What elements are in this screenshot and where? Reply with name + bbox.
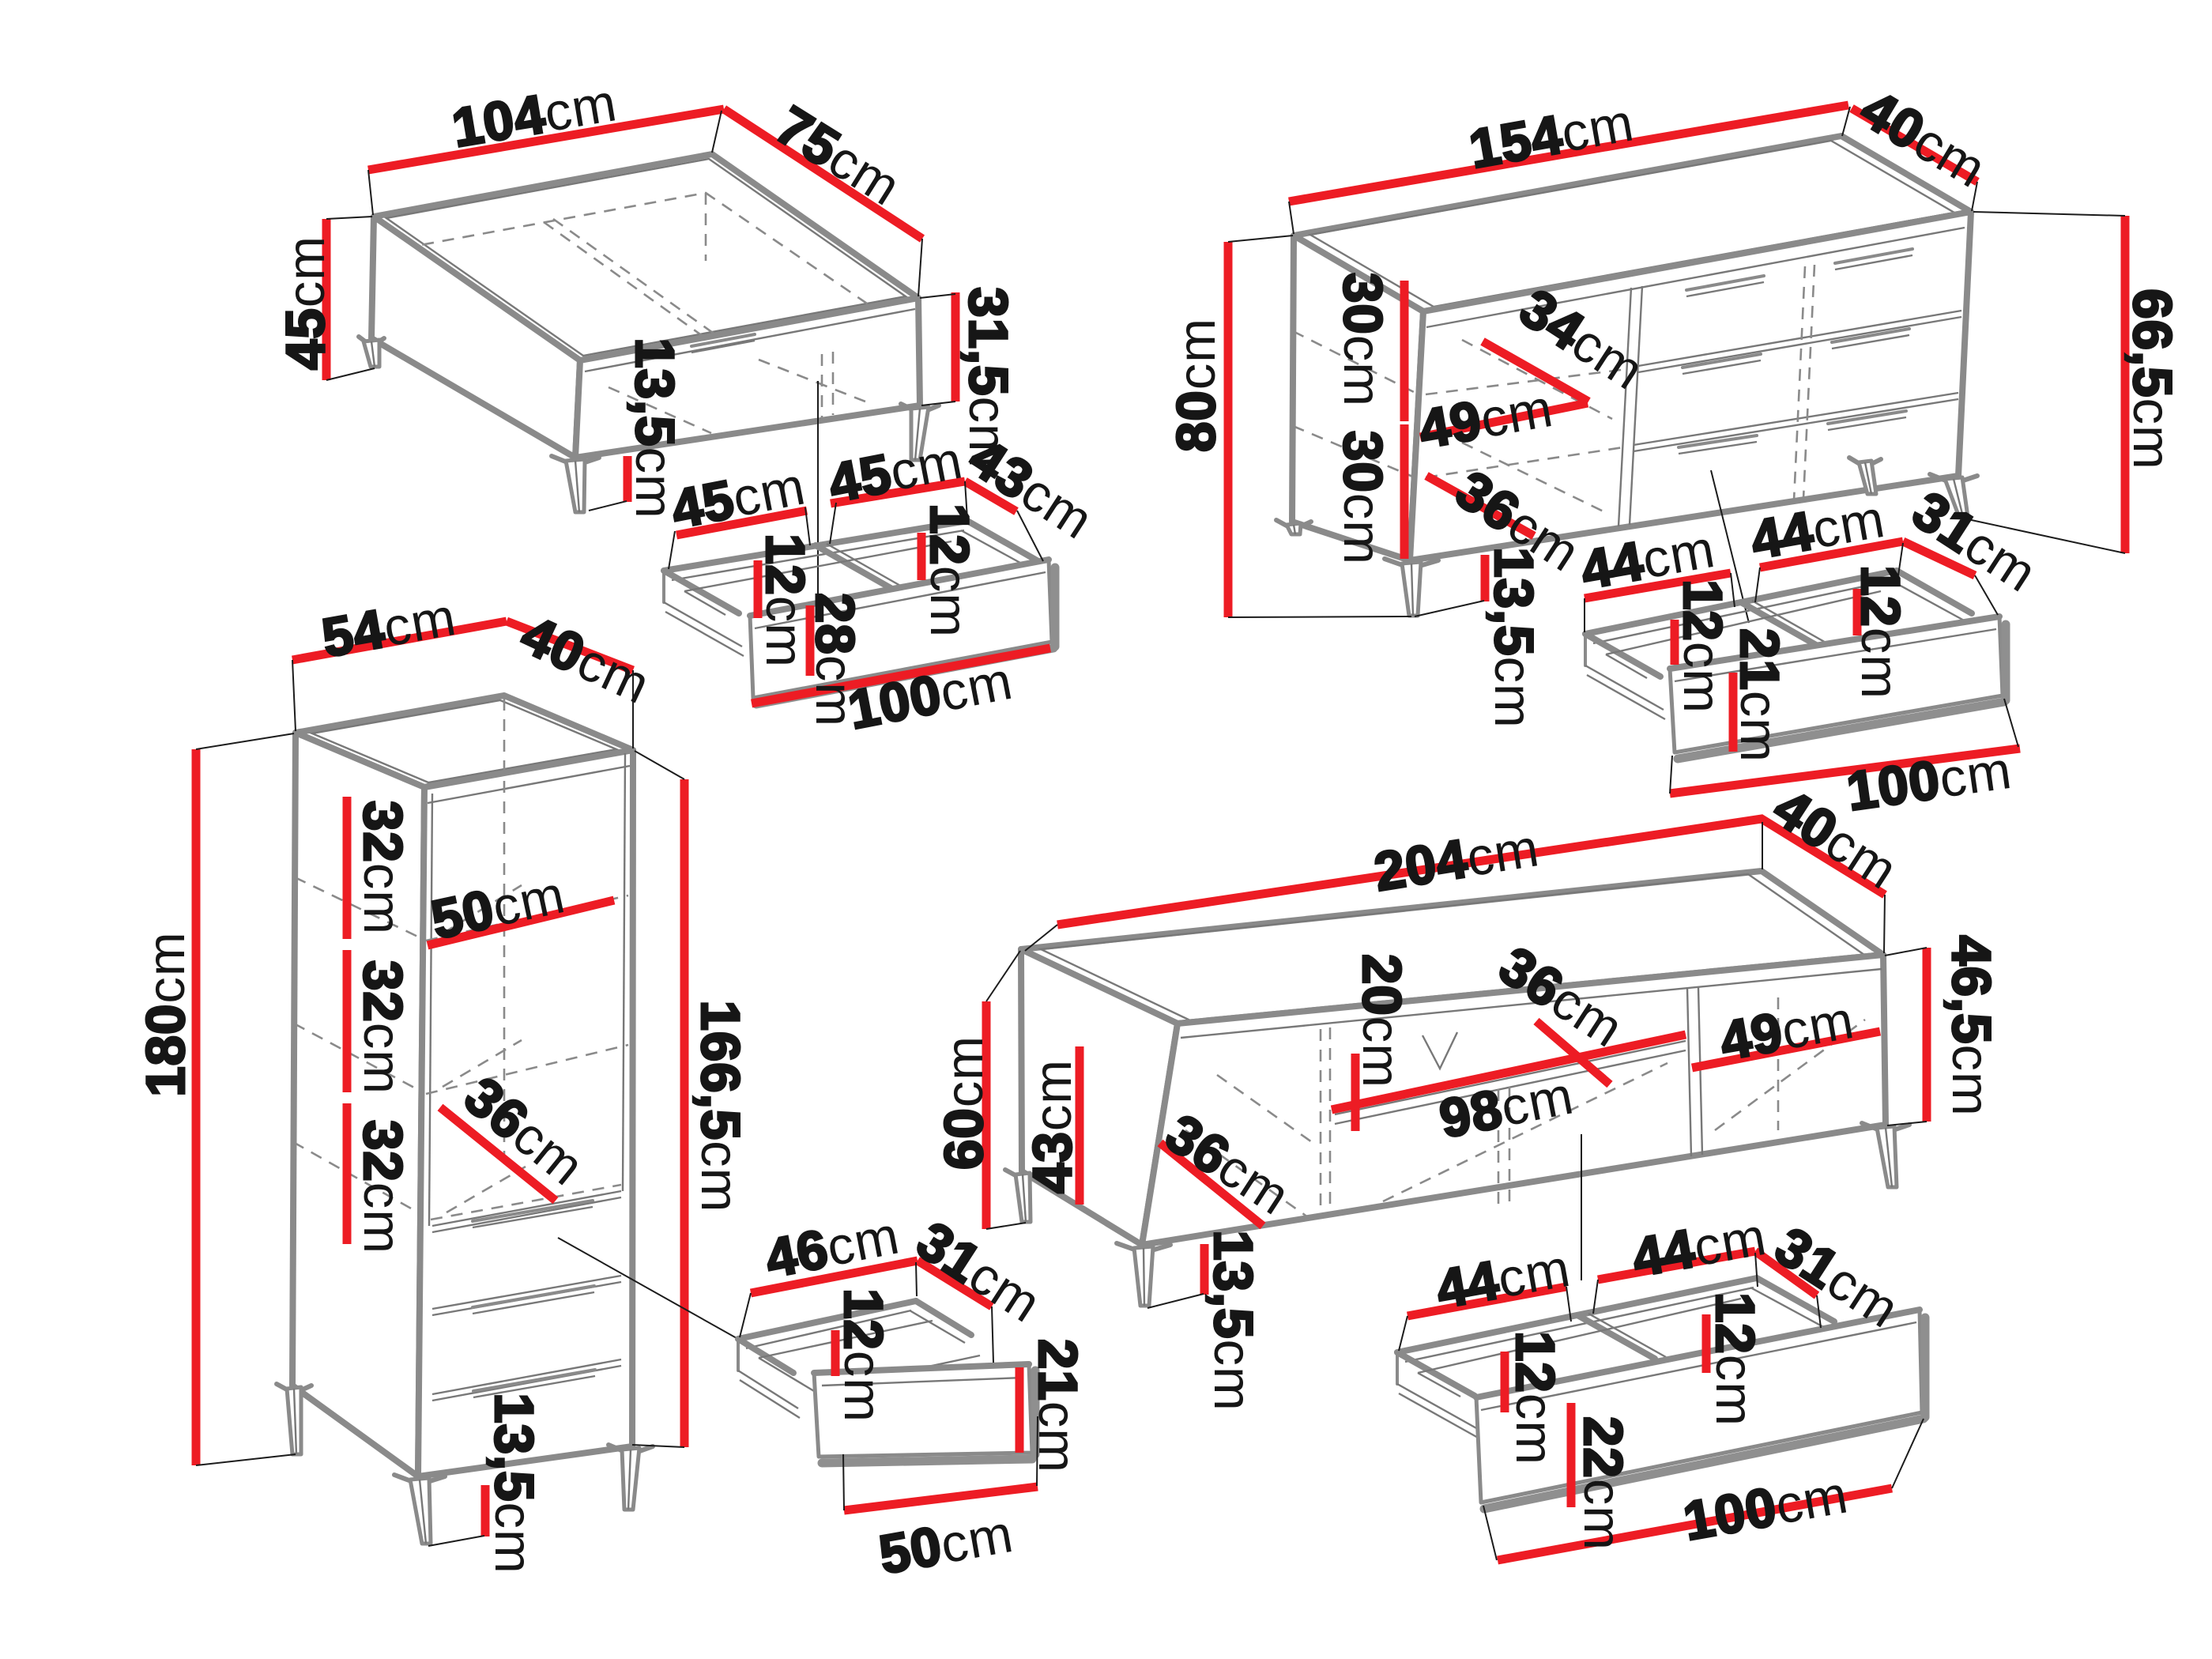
svg-text:13,5cm: 13,5cm [1203,1230,1264,1412]
svg-text:12cm: 12cm [1672,579,1733,714]
svg-text:32cm: 32cm [352,1120,413,1254]
svg-text:13,5cm: 13,5cm [484,1393,545,1574]
svg-text:22cm: 22cm [1573,1416,1634,1551]
svg-text:30cm: 30cm [1332,273,1393,407]
svg-text:180cm: 180cm [135,931,196,1096]
svg-text:60cm: 60cm [933,1035,994,1170]
svg-text:12cm: 12cm [1505,1331,1566,1465]
svg-text:20cm: 20cm [1351,954,1412,1088]
svg-text:166,5cm: 166,5cm [690,1001,751,1213]
svg-text:32cm: 32cm [352,801,413,935]
svg-text:21cm: 21cm [1729,628,1790,763]
svg-text:80cm: 80cm [1166,318,1227,452]
svg-text:12cm: 12cm [833,1288,894,1423]
svg-text:13,5cm: 13,5cm [1483,547,1544,729]
svg-text:12cm: 12cm [919,503,980,638]
svg-text:30cm: 30cm [1332,431,1393,565]
svg-text:66,5cm: 66,5cm [2122,288,2183,470]
svg-text:43cm: 43cm [1022,1059,1083,1193]
svg-text:12cm: 12cm [1850,565,1911,699]
svg-text:46,5cm: 46,5cm [1941,935,2002,1117]
svg-text:12cm: 12cm [1705,1292,1765,1427]
svg-text:45cm: 45cm [275,236,336,370]
svg-text:32cm: 32cm [352,960,413,1095]
svg-text:21cm: 21cm [1027,1339,1088,1473]
